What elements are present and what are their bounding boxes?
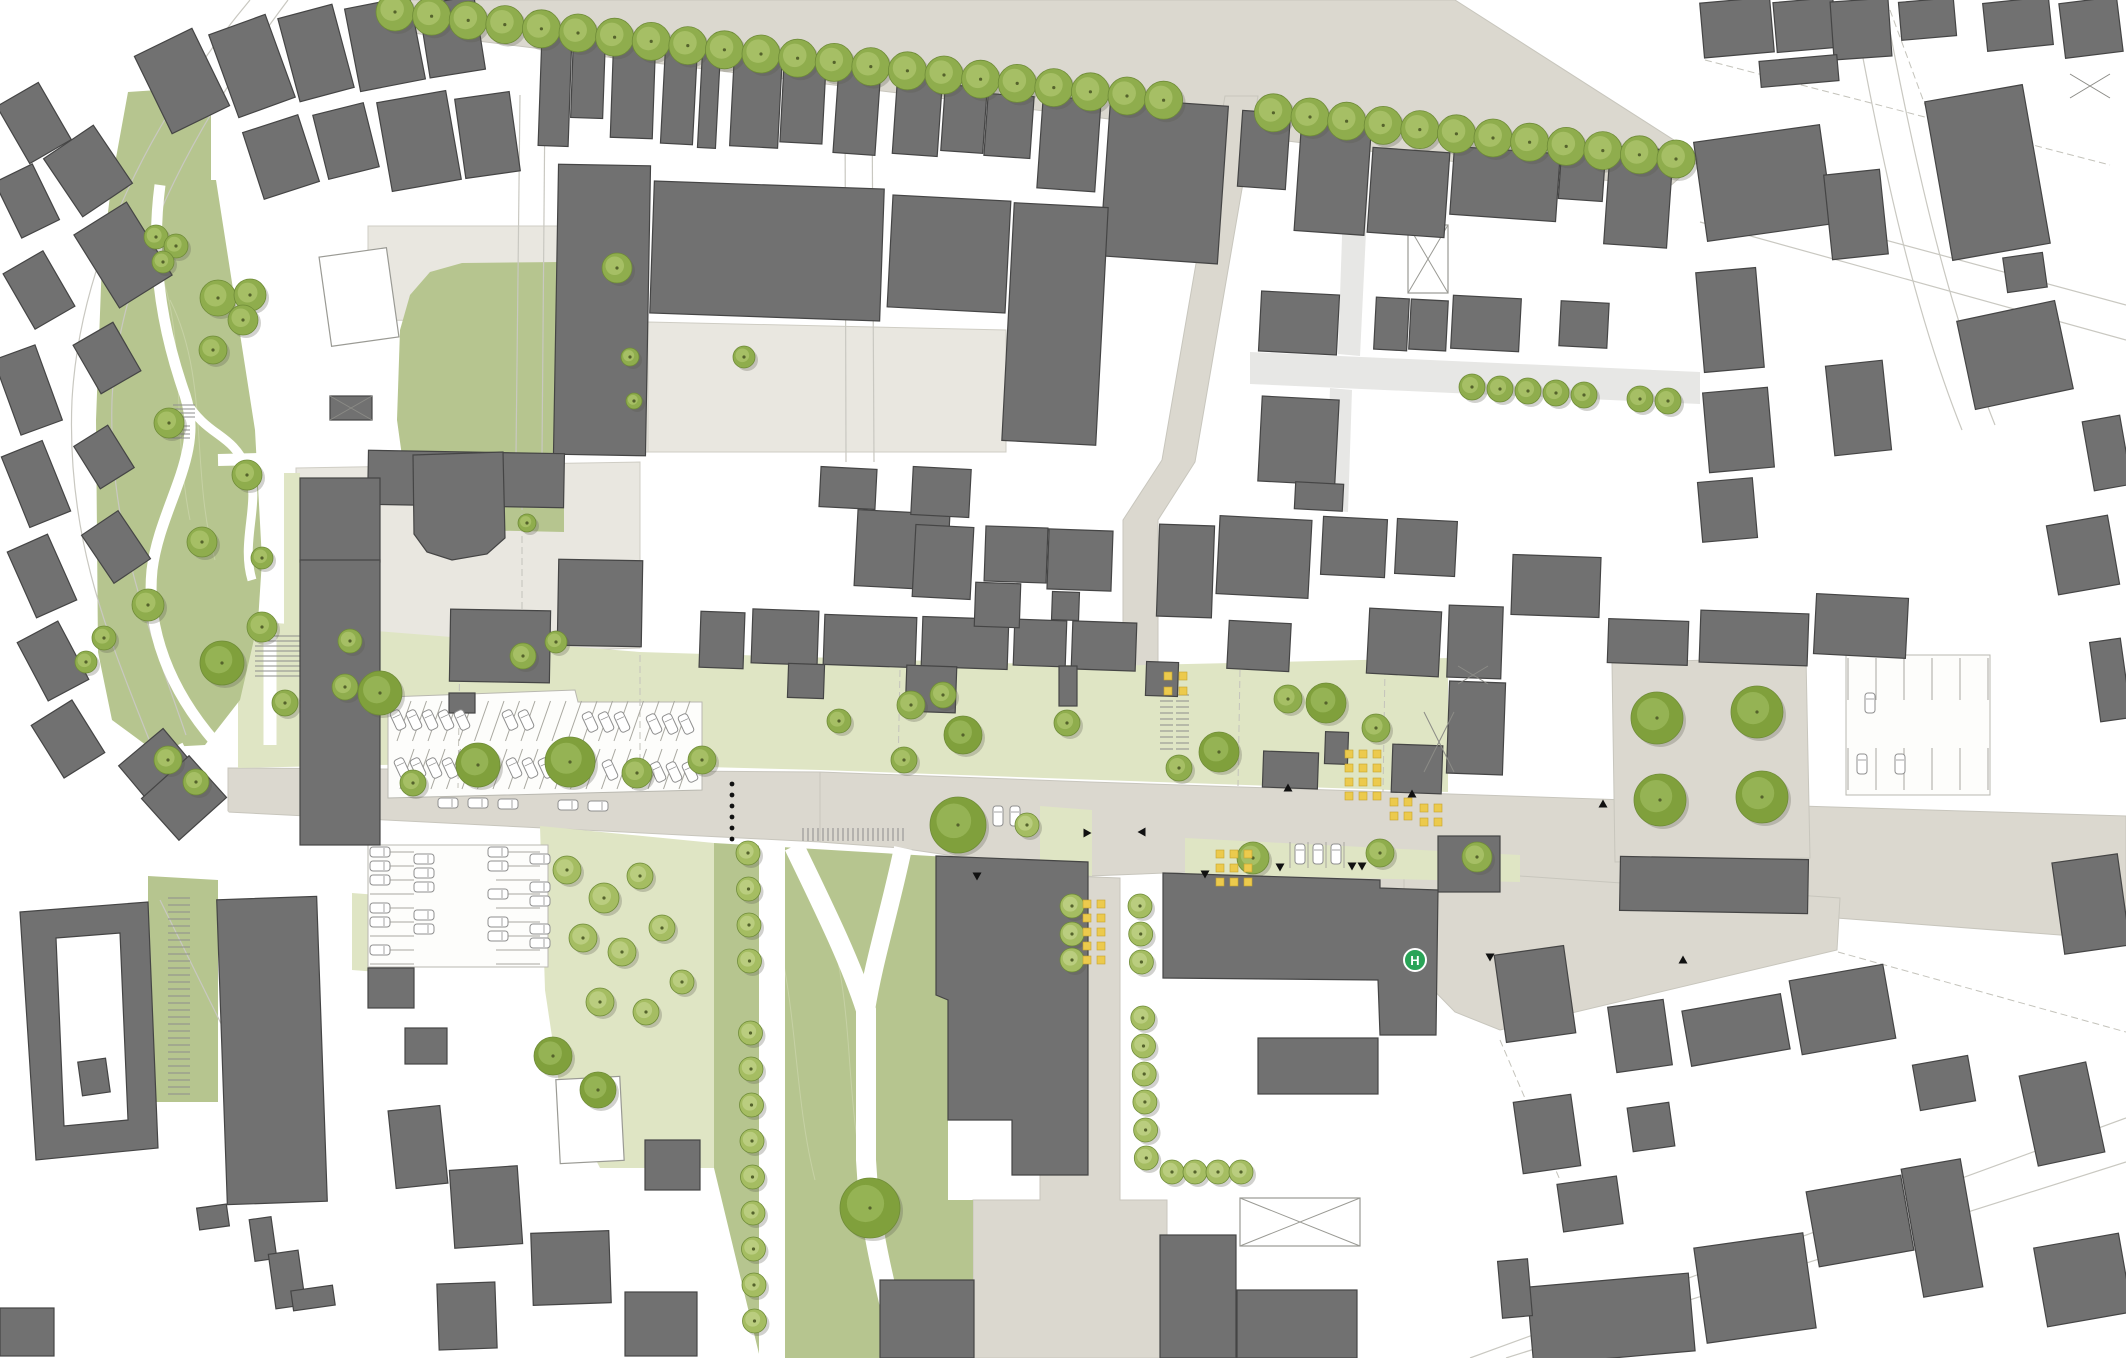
building bbox=[437, 1282, 497, 1350]
building bbox=[1321, 516, 1388, 577]
car-body bbox=[468, 798, 488, 808]
tree-trunk-dot bbox=[751, 1175, 754, 1178]
building bbox=[197, 1204, 230, 1230]
tree-crown-light bbox=[254, 550, 268, 564]
building bbox=[1773, 0, 1837, 53]
tree-crown-light bbox=[147, 228, 162, 243]
tree-crown-light bbox=[1259, 98, 1283, 122]
building bbox=[1100, 98, 1229, 264]
car-symbol bbox=[370, 903, 390, 913]
tree-crown-light bbox=[1209, 1163, 1224, 1178]
building bbox=[1697, 478, 1757, 543]
tree-trunk-dot bbox=[241, 318, 244, 321]
tree-crown-light bbox=[527, 14, 551, 38]
tree-crown-light bbox=[157, 749, 174, 766]
tree-trunk-dot bbox=[1638, 397, 1641, 400]
car-symbol bbox=[370, 917, 390, 927]
tree-crown-light bbox=[1204, 737, 1229, 762]
tree-trunk-dot bbox=[1308, 115, 1311, 118]
tree-crown-light bbox=[1332, 107, 1356, 131]
stall-square bbox=[1244, 864, 1252, 872]
tree-crown-light bbox=[1311, 688, 1336, 713]
car-symbol bbox=[1331, 844, 1341, 864]
tree-trunk-dot bbox=[644, 1010, 647, 1013]
tree-crown-light bbox=[186, 772, 202, 788]
tree-trunk-dot bbox=[554, 640, 557, 643]
bus-stop-label: H bbox=[1410, 953, 1419, 968]
tree-trunk-dot bbox=[245, 473, 248, 476]
parking-lot bbox=[368, 845, 548, 967]
building bbox=[413, 452, 505, 560]
tree-trunk-dot bbox=[613, 36, 616, 39]
tree-crown-light bbox=[1574, 385, 1590, 401]
building bbox=[819, 467, 877, 510]
car-symbol bbox=[468, 798, 488, 808]
tree-trunk-dot bbox=[1498, 387, 1501, 390]
tree-trunk-dot bbox=[660, 926, 663, 929]
car-body bbox=[414, 868, 434, 878]
car-body bbox=[488, 861, 508, 871]
building bbox=[887, 195, 1011, 313]
stairs-hatch bbox=[803, 828, 903, 841]
stall-square bbox=[1230, 864, 1238, 872]
tree-crown-light bbox=[551, 743, 582, 774]
tree-crown-light bbox=[856, 52, 880, 76]
tree-trunk-dot bbox=[167, 421, 170, 424]
tree-trunk-dot bbox=[1470, 385, 1473, 388]
building bbox=[1395, 518, 1458, 576]
car-body bbox=[588, 801, 608, 811]
stall-square bbox=[1420, 818, 1428, 826]
building bbox=[1912, 1055, 1975, 1110]
tree-trunk-dot bbox=[833, 61, 836, 64]
tree-trunk-dot bbox=[1418, 128, 1421, 131]
stall-square bbox=[1230, 878, 1238, 886]
car-symbol bbox=[993, 806, 1003, 826]
stall-square bbox=[1244, 878, 1252, 886]
stall-square bbox=[1359, 778, 1367, 786]
building bbox=[1047, 529, 1113, 591]
car-symbol bbox=[1865, 693, 1875, 713]
tree-trunk-dot bbox=[220, 661, 223, 664]
building bbox=[645, 1140, 700, 1190]
stall-square bbox=[1345, 792, 1353, 800]
building bbox=[1824, 169, 1889, 259]
tree-crown-light bbox=[461, 748, 488, 775]
tree-crown-light bbox=[556, 859, 573, 876]
building bbox=[1703, 387, 1775, 472]
tree-crown-light bbox=[538, 1041, 562, 1065]
tree-crown-light bbox=[520, 516, 531, 527]
tree-crown-light bbox=[1136, 1121, 1151, 1136]
building bbox=[2046, 515, 2119, 595]
tree-crown-light bbox=[630, 866, 646, 882]
tree-crown-light bbox=[1063, 951, 1078, 966]
car-body bbox=[558, 800, 578, 810]
building bbox=[650, 181, 884, 321]
tree-trunk-dot bbox=[961, 733, 964, 736]
tree-trunk-dot bbox=[979, 78, 982, 81]
building bbox=[449, 1166, 522, 1249]
car-body bbox=[370, 945, 390, 955]
building bbox=[1002, 203, 1108, 446]
bus-stop-layer: H bbox=[1404, 949, 1426, 971]
tree-trunk-dot bbox=[1755, 710, 1758, 713]
tree-trunk-dot bbox=[283, 701, 286, 704]
building bbox=[1694, 125, 1834, 242]
stall-square bbox=[1373, 750, 1381, 758]
tree-trunk-dot bbox=[1526, 389, 1529, 392]
tree-crown-light bbox=[1063, 897, 1078, 912]
tree-crown-light bbox=[1369, 111, 1393, 135]
stall-square bbox=[1097, 942, 1105, 950]
tree-crown-light bbox=[1630, 389, 1646, 405]
tree-crown-light bbox=[741, 1024, 756, 1039]
building bbox=[1262, 751, 1318, 789]
tree-crown-light bbox=[204, 284, 226, 306]
tree-crown-light bbox=[637, 27, 661, 51]
building bbox=[1830, 0, 1892, 60]
tree-crown-light bbox=[691, 749, 708, 766]
tree-trunk-dot bbox=[628, 355, 631, 358]
stall-square bbox=[1359, 764, 1367, 772]
tree-crown-light bbox=[1661, 144, 1685, 168]
tree-trunk-dot bbox=[1162, 99, 1165, 102]
tree-crown-light bbox=[743, 1132, 758, 1147]
tree-trunk-dot bbox=[615, 266, 618, 269]
building bbox=[449, 609, 550, 683]
car-body bbox=[1295, 844, 1305, 864]
tree-trunk-dot bbox=[1065, 721, 1068, 724]
car-symbol bbox=[414, 854, 434, 864]
tree-trunk-dot bbox=[1089, 90, 1092, 93]
stall-square bbox=[1359, 792, 1367, 800]
tree-trunk-dot bbox=[620, 950, 623, 953]
tree-trunk-dot bbox=[723, 48, 726, 51]
tree-trunk-dot bbox=[747, 923, 750, 926]
tree-trunk-dot bbox=[635, 771, 638, 774]
tree-trunk-dot bbox=[540, 27, 543, 30]
tree-crown-light bbox=[744, 1204, 759, 1219]
tree-trunk-dot bbox=[1491, 136, 1494, 139]
car-symbol bbox=[414, 924, 434, 934]
car-symbol bbox=[498, 799, 518, 809]
car-body bbox=[370, 861, 390, 871]
tree-trunk-dot bbox=[1286, 697, 1289, 700]
tree-crown-light bbox=[1546, 383, 1562, 399]
tree-trunk-dot bbox=[1216, 1170, 1219, 1173]
tree-trunk-dot bbox=[1272, 111, 1275, 114]
tree-crown-light bbox=[157, 411, 176, 430]
tree-crown-light bbox=[745, 1312, 760, 1327]
tree-crown-light bbox=[1232, 1163, 1247, 1178]
tree-trunk-dot bbox=[476, 763, 479, 766]
stall-square bbox=[1434, 818, 1442, 826]
car-symbol bbox=[1857, 754, 1867, 774]
tree-crown-light bbox=[746, 39, 770, 63]
stall-square bbox=[1359, 750, 1367, 758]
tree-trunk-dot bbox=[84, 660, 87, 663]
tree-trunk-dot bbox=[581, 936, 584, 939]
tree-crown-light bbox=[335, 677, 351, 693]
building bbox=[1294, 482, 1343, 511]
tree-crown-light bbox=[673, 31, 697, 55]
tree-trunk-dot bbox=[1655, 716, 1658, 719]
tree-trunk-dot bbox=[565, 868, 568, 871]
tree-crown-light bbox=[1277, 688, 1294, 705]
car-body bbox=[414, 882, 434, 892]
tree-trunk-dot bbox=[102, 636, 105, 639]
tree-trunk-dot bbox=[551, 1054, 554, 1057]
building bbox=[1513, 1094, 1580, 1173]
tree-trunk-dot bbox=[1142, 1044, 1145, 1047]
tree-crown-light bbox=[1637, 698, 1669, 730]
car-body bbox=[438, 798, 458, 808]
car-body bbox=[370, 847, 390, 857]
building bbox=[1696, 268, 1764, 373]
tree-crown-light bbox=[929, 60, 953, 84]
tree-trunk-dot bbox=[686, 44, 689, 47]
tree-trunk-dot bbox=[1378, 851, 1381, 854]
stall-square bbox=[1244, 850, 1252, 858]
tree-crown-light bbox=[95, 629, 110, 644]
stall-square bbox=[1404, 798, 1412, 806]
tree-crown-light bbox=[202, 339, 219, 356]
building bbox=[1227, 620, 1291, 671]
tree-trunk-dot bbox=[1455, 132, 1458, 135]
tree-crown-light bbox=[894, 750, 910, 766]
tree-crown-light bbox=[1186, 1163, 1201, 1178]
tree-trunk-dot bbox=[902, 758, 905, 761]
tree-trunk-dot bbox=[906, 69, 909, 72]
car-body bbox=[488, 889, 508, 899]
site-plan-map: H bbox=[0, 0, 2126, 1358]
tree-trunk-dot bbox=[869, 65, 872, 68]
tree-crown-light bbox=[948, 720, 972, 744]
tree-crown-light bbox=[1149, 86, 1173, 110]
stall-square bbox=[1179, 672, 1187, 680]
tree-crown-light bbox=[592, 886, 611, 905]
tree-trunk-dot bbox=[868, 1206, 871, 1209]
car-body bbox=[530, 938, 550, 948]
crosswalk-dot bbox=[730, 826, 735, 831]
tree-crown-light bbox=[417, 2, 441, 26]
tree-trunk-dot bbox=[837, 719, 840, 722]
building bbox=[1374, 297, 1410, 351]
car-symbol bbox=[370, 861, 390, 871]
tree-trunk-dot bbox=[909, 703, 912, 706]
car-symbol bbox=[370, 945, 390, 955]
car-body bbox=[414, 924, 434, 934]
tree-trunk-dot bbox=[1070, 904, 1073, 907]
tree-crown-light bbox=[1737, 692, 1769, 724]
tree-crown-light bbox=[1640, 780, 1672, 812]
tree-crown-light bbox=[1112, 81, 1136, 105]
tree-crown-light bbox=[190, 530, 209, 549]
building bbox=[2059, 0, 2123, 58]
green-area bbox=[284, 473, 300, 685]
tree-trunk-dot bbox=[174, 244, 177, 247]
building bbox=[0, 1308, 54, 1356]
tree-crown-light bbox=[563, 18, 587, 42]
tree-trunk-dot bbox=[411, 781, 414, 784]
tree-crown-light bbox=[783, 44, 807, 68]
building bbox=[1071, 621, 1137, 671]
car-body bbox=[414, 910, 434, 920]
tree-crown-light bbox=[1658, 391, 1674, 407]
tree-trunk-dot bbox=[700, 758, 703, 761]
car-body bbox=[498, 799, 518, 809]
tree-trunk-dot bbox=[521, 654, 524, 657]
tree-crown-light bbox=[1552, 132, 1576, 156]
tree-crown-light bbox=[1588, 136, 1612, 160]
courtyard bbox=[648, 322, 1006, 452]
car-symbol bbox=[530, 854, 550, 864]
crosswalk-dot bbox=[730, 793, 735, 798]
car-symbol bbox=[370, 847, 390, 857]
tree-crown-light bbox=[900, 694, 917, 711]
building bbox=[531, 1231, 611, 1306]
tree-trunk-dot bbox=[1193, 1170, 1196, 1173]
tree-crown-light bbox=[652, 918, 668, 934]
building bbox=[2003, 252, 2047, 292]
tree-crown-light bbox=[78, 654, 92, 668]
tree-crown-light bbox=[155, 254, 169, 268]
building bbox=[1391, 744, 1443, 794]
tree-trunk-dot bbox=[1070, 958, 1073, 961]
car-body bbox=[530, 882, 550, 892]
tree-trunk-dot bbox=[753, 1319, 756, 1322]
stall-square bbox=[1434, 804, 1442, 812]
car-symbol bbox=[530, 938, 550, 948]
building bbox=[1511, 554, 1601, 617]
stall-square bbox=[1097, 914, 1105, 922]
building bbox=[1366, 608, 1441, 677]
stall-square bbox=[1164, 672, 1172, 680]
tree-crown-light bbox=[710, 35, 734, 59]
tree-trunk-dot bbox=[942, 73, 945, 76]
car-symbol bbox=[488, 847, 508, 857]
building bbox=[1494, 946, 1576, 1043]
tree-crown-light bbox=[548, 634, 562, 648]
building bbox=[1699, 610, 1809, 666]
stall-square bbox=[1373, 764, 1381, 772]
tree-crown-light bbox=[341, 632, 356, 647]
tree-trunk-dot bbox=[1144, 1128, 1147, 1131]
tree-trunk-dot bbox=[650, 40, 653, 43]
tree-trunk-dot bbox=[1143, 1100, 1146, 1103]
car-symbol bbox=[1895, 754, 1905, 774]
tree-trunk-dot bbox=[200, 540, 203, 543]
tree-trunk-dot bbox=[638, 874, 641, 877]
stall-square bbox=[1216, 864, 1224, 872]
tree-trunk-dot bbox=[1145, 1156, 1148, 1159]
car-symbol bbox=[488, 917, 508, 927]
tree-trunk-dot bbox=[161, 260, 164, 263]
tree-trunk-dot bbox=[1177, 766, 1180, 769]
building bbox=[1806, 1175, 1914, 1267]
tree-trunk-dot bbox=[1666, 399, 1669, 402]
stall-square bbox=[1345, 750, 1353, 758]
tree-trunk-dot bbox=[1125, 94, 1128, 97]
stall-square bbox=[1083, 956, 1091, 964]
tree-trunk-dot bbox=[1638, 153, 1641, 156]
stall-square bbox=[1345, 764, 1353, 772]
tree-trunk-dot bbox=[1324, 701, 1327, 704]
tree-crown-light bbox=[740, 952, 755, 967]
tree-trunk-dot bbox=[1143, 1072, 1146, 1075]
tree-crown-light bbox=[625, 761, 644, 780]
tree-crown-light bbox=[584, 1076, 606, 1098]
car-symbol bbox=[588, 801, 608, 811]
tree-trunk-dot bbox=[602, 896, 605, 899]
car-symbol bbox=[1295, 844, 1305, 864]
tree-trunk-dot bbox=[1565, 145, 1568, 148]
tree-trunk-dot bbox=[1345, 120, 1348, 123]
building bbox=[1145, 661, 1178, 696]
tree-crown-light bbox=[1076, 77, 1100, 101]
tree-crown-light bbox=[820, 48, 844, 72]
tree-trunk-dot bbox=[568, 760, 571, 763]
tree-trunk-dot bbox=[1141, 1016, 1144, 1019]
car-symbol bbox=[488, 889, 508, 899]
building bbox=[823, 614, 917, 667]
stall-square bbox=[1373, 778, 1381, 786]
tree-trunk-dot bbox=[1052, 86, 1055, 89]
tree-crown-light bbox=[1465, 845, 1484, 864]
parking-lot bbox=[388, 690, 702, 798]
building bbox=[1451, 295, 1522, 351]
tree-trunk-dot bbox=[750, 1139, 753, 1142]
building bbox=[751, 609, 819, 665]
building bbox=[300, 478, 380, 562]
building bbox=[2052, 854, 2126, 954]
building bbox=[1237, 1290, 1357, 1358]
tree-crown-light bbox=[1163, 1163, 1178, 1178]
tree-crown-light bbox=[1478, 123, 1502, 147]
tree-trunk-dot bbox=[343, 685, 346, 688]
building bbox=[405, 1028, 447, 1064]
tree-trunk-dot bbox=[759, 52, 762, 55]
tree-crown-light bbox=[235, 463, 254, 482]
tree-trunk-dot bbox=[1760, 795, 1763, 798]
car-symbol bbox=[488, 931, 508, 941]
stall-square bbox=[1097, 900, 1105, 908]
tree-crown-light bbox=[1369, 842, 1386, 859]
car-symbol bbox=[414, 882, 434, 892]
tree-crown-light bbox=[966, 65, 990, 89]
tree-trunk-dot bbox=[747, 887, 750, 890]
building bbox=[1608, 999, 1673, 1072]
tree-crown-light bbox=[742, 1096, 757, 1111]
tree-crown-light bbox=[636, 1002, 652, 1018]
car-body bbox=[1857, 754, 1867, 774]
building bbox=[974, 582, 1021, 628]
tree-crown-light bbox=[739, 880, 754, 895]
building bbox=[217, 896, 328, 1204]
crosswalk-dot bbox=[730, 815, 735, 820]
stall-square bbox=[1216, 878, 1224, 886]
tree-trunk-dot bbox=[525, 521, 528, 524]
crosswalk-dot bbox=[730, 804, 735, 809]
tree-trunk-dot bbox=[751, 1211, 754, 1214]
tree-crown-light bbox=[623, 350, 634, 361]
stall-square bbox=[1083, 900, 1091, 908]
building bbox=[1156, 524, 1214, 618]
car-symbol bbox=[530, 896, 550, 906]
tree-crown-light bbox=[605, 256, 624, 275]
tree-trunk-dot bbox=[746, 851, 749, 854]
